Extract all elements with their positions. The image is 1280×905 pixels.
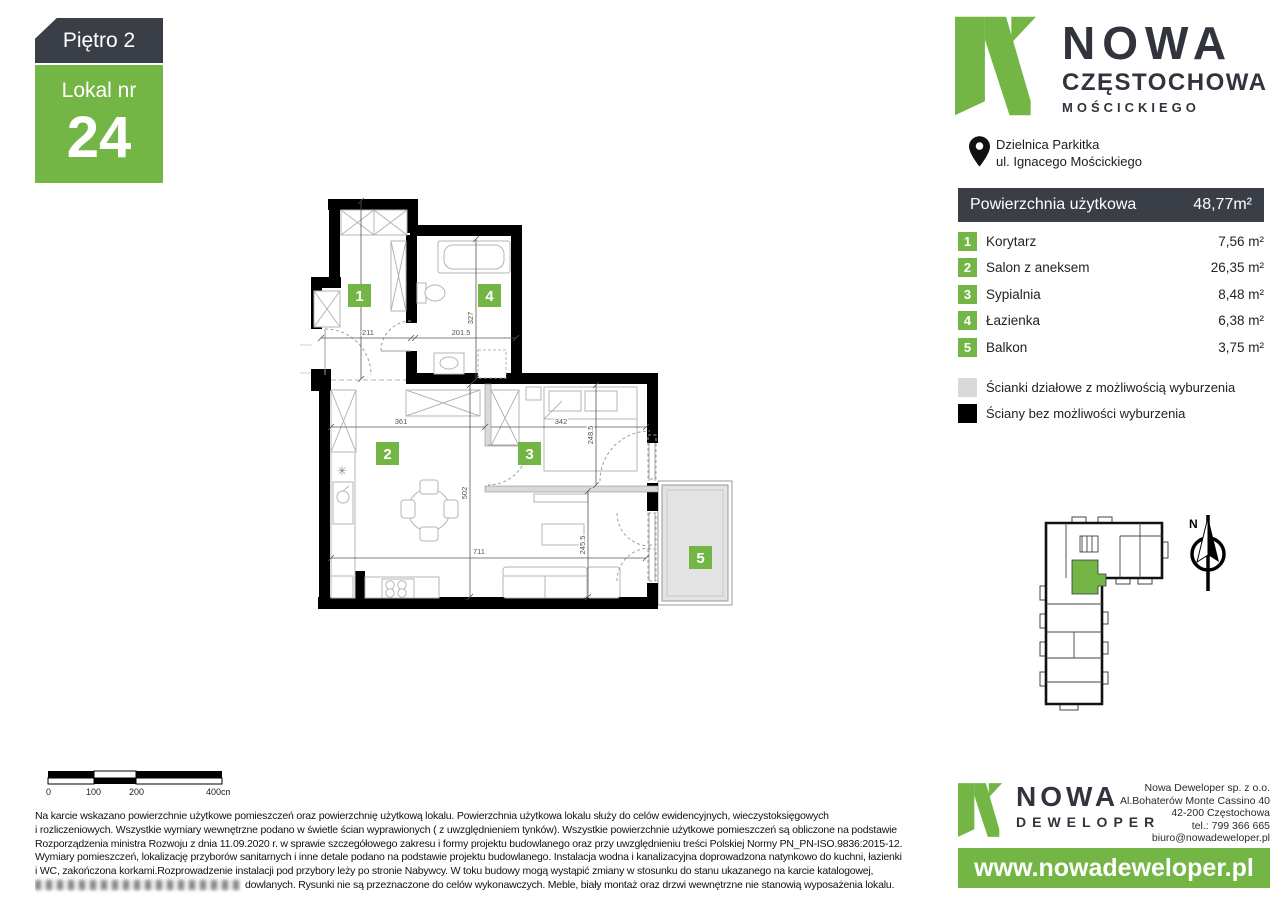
room-label: Korytarz <box>986 234 1218 249</box>
plan-room-number: 3 <box>525 446 533 463</box>
plan-room-number: 5 <box>696 550 704 567</box>
table-row: 1 Korytarz 7,56 m² <box>958 230 1264 252</box>
scale-tick-label: 100 <box>86 787 101 797</box>
area-table-title: Powierzchnia użytkowa <box>970 196 1136 214</box>
compass-icon: N <box>1183 512 1233 594</box>
brand-street: MOŚCICKIEGO <box>1062 98 1267 118</box>
brand-city: CZĘSTOCHOWA <box>1062 68 1267 98</box>
balcony <box>658 481 732 605</box>
website-link[interactable]: www.nowadeweloper.pl <box>958 848 1270 888</box>
unit-badge: Lokal nr 24 <box>35 65 163 183</box>
scale-tick-label: 0 <box>46 787 51 797</box>
plan-room-number: 2 <box>383 446 391 463</box>
room-label: Salon z aneksem <box>986 260 1211 275</box>
hob-symbol-icon: ✳ <box>337 464 347 478</box>
area-table-total: 48,77m² <box>1193 196 1252 214</box>
disclaimer-text: Na karcie wskazano powierzchnie użytkowe… <box>35 810 911 893</box>
unit-badge-number: 24 <box>35 107 163 169</box>
disclaimer-line: dowlanych. Rysunki nie są przeznaczone d… <box>35 879 911 893</box>
dim-label: 711 <box>473 547 485 556</box>
room-number-badge: 3 <box>958 285 977 304</box>
floor-badge: Piętro 2 <box>35 18 163 63</box>
disclaimer-line: Rozporządzenia ministra Rozwoju z dnia 1… <box>35 838 911 852</box>
company-contact-info: Nowa Deweloper sp. z o.o. Al.Bohaterów M… <box>1090 782 1270 845</box>
room-area: 3,75 m² <box>1218 340 1264 355</box>
dim-label: 211 <box>362 328 374 337</box>
table-row: 3 Sypialnia 8,48 m² <box>958 283 1264 305</box>
brand-name: NOWA <box>1062 18 1267 68</box>
scale-bar-labels: 0 100 200 400cm <box>46 787 230 797</box>
brand-wordmark: NOWA CZĘSTOCHOWA MOŚCICKIEGO <box>1062 18 1267 118</box>
partition-wall-swatch <box>958 378 977 397</box>
room-number-badge: 5 <box>958 338 977 357</box>
company-city: 42-200 Częstochowa <box>1090 807 1270 820</box>
brand-n-logo-icon <box>955 16 1043 116</box>
room-number-badge: 4 <box>958 311 977 330</box>
area-table-header: Powierzchnia użytkowa 48,77m² <box>958 188 1264 222</box>
dim-label: 327 <box>466 312 475 325</box>
dim-label: 248.5 <box>586 426 595 445</box>
dim-label: 201.5 <box>452 328 471 337</box>
unit-badge-label: Lokal nr <box>35 79 163 103</box>
company-name: Nowa Deweloper sp. z o.o. <box>1090 782 1270 795</box>
legend-row-partition: Ścianki działowe z możliwością wyburzeni… <box>958 376 1264 398</box>
room-area: 8,48 m² <box>1218 287 1264 302</box>
room-label: Sypialnia <box>986 287 1218 302</box>
company-phone: tel.: 799 366 665 <box>1090 820 1270 833</box>
company-street: Al.Bohaterów Monte Cassino 40 <box>1090 795 1270 808</box>
location-pin-icon <box>969 136 990 167</box>
company-email: biuro@nowadeweloper.pl <box>1090 832 1270 845</box>
legend-solid-label: Ściany bez możliwości wyburzenia <box>986 406 1264 421</box>
address-line-district: Dzielnica Parkitka <box>996 136 1142 153</box>
building-key-plan <box>1032 512 1174 720</box>
table-row: 5 Balkon 3,75 m² <box>958 336 1264 358</box>
floor-plan: ✳ <box>298 183 748 628</box>
table-row: 4 Łazienka 6,38 m² <box>958 310 1264 332</box>
disclaimer-line: i rozliczeniowych. Wszystkie wymiary wew… <box>35 824 911 838</box>
table-row: 2 Salon z aneksem 26,35 m² <box>958 257 1264 279</box>
scale-tick-label: 400cm <box>206 787 230 797</box>
room-area: 7,56 m² <box>1218 234 1264 249</box>
room-area: 26,35 m² <box>1211 260 1264 275</box>
furniture: ✳ <box>314 210 637 598</box>
address-line-street: ul. Ignacego Mościckiego <box>996 153 1142 170</box>
project-address: Dzielnica Parkitka ul. Ignacego Mościcki… <box>996 136 1142 170</box>
developer-n-logo-icon <box>958 782 1006 838</box>
dim-label: 245.5 <box>578 536 587 555</box>
plan-room-number: 1 <box>355 288 363 305</box>
room-number-badge: 2 <box>958 258 977 277</box>
scale-bar: 0 100 200 400cm <box>46 770 230 798</box>
obscured-text-region <box>35 880 240 890</box>
dim-label: 342 <box>555 417 568 426</box>
room-number-badge: 1 <box>958 232 977 251</box>
room-label: Łazienka <box>986 313 1218 328</box>
room-area: 6,38 m² <box>1218 313 1264 328</box>
catalog-card: Piętro 2 Lokal nr 24 NOWA CZĘSTOCHOWA MO… <box>0 0 1280 905</box>
scale-tick-label: 200 <box>129 787 144 797</box>
dim-label: 502 <box>460 487 469 500</box>
dim-label: 361 <box>395 417 408 426</box>
compass-n-label: N <box>1189 517 1198 531</box>
disclaimer-line: i WC, zakończona korkami.Rozprowadzenie … <box>35 865 911 879</box>
solid-wall-swatch <box>958 404 977 423</box>
disclaimer-line: Na karcie wskazano powierzchnie użytkowe… <box>35 810 911 824</box>
legend-partition-label: Ścianki działowe z możliwością wyburzeni… <box>986 380 1264 395</box>
dimension-labels: 409 211 201.5 327 361 342 248.5 502 711 … <box>351 287 595 556</box>
legend-row-solid: Ściany bez możliwości wyburzenia <box>958 402 1264 424</box>
disclaimer-line-tail: dowlanych. Rysunki nie są przeznaczone d… <box>245 879 894 891</box>
room-label: Balkon <box>986 340 1218 355</box>
plan-room-number: 4 <box>485 288 494 305</box>
disclaimer-line: Wymiary pomieszczeń, lokalizację przybor… <box>35 851 911 865</box>
